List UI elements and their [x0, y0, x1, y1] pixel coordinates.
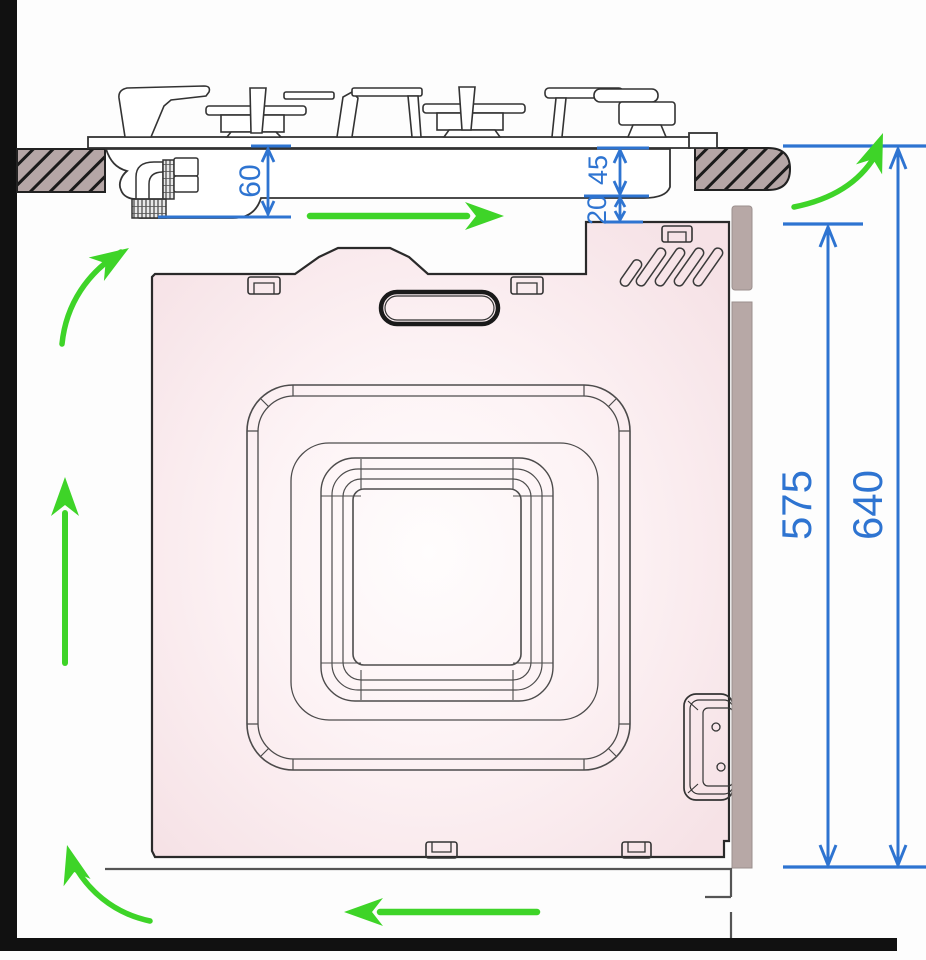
dimension-label-20: 20 [582, 195, 612, 225]
grate-bar-middle [352, 88, 422, 96]
pan-support-left [119, 86, 210, 137]
cabinet-side-panel [732, 206, 752, 868]
gas-nut-lower [174, 176, 198, 192]
airflow-arrow-bottom-left-curved [53, 841, 150, 921]
diagram-canvas: 60 45 20 575 640 [0, 0, 926, 960]
burner-arm-right [594, 89, 658, 102]
gas-nipple [132, 199, 166, 218]
dimension-575 [820, 227, 836, 865]
grate-leg-5 [552, 98, 566, 137]
cabinet-base-outline [105, 869, 731, 938]
dimension-label-45: 45 [583, 155, 613, 185]
dimension-label-640: 640 [844, 470, 891, 540]
dimension-640 [890, 149, 906, 865]
airflow-arrow-left [344, 898, 537, 926]
hob-plate-right-lip [689, 133, 717, 148]
gas-nut-upper [174, 158, 198, 176]
built-in-oven [152, 222, 733, 858]
burner-cap-right [619, 102, 675, 125]
side-panel-lower [732, 302, 752, 868]
cabinet-base [105, 869, 731, 938]
grate-rail [284, 92, 334, 99]
airflow-arrow-up-left-curved [62, 236, 137, 344]
installation-diagram: 60 45 20 575 640 [0, 0, 926, 960]
grate-leg-3 [408, 96, 421, 137]
arrowhead [465, 202, 504, 230]
gas-thread-collar [163, 160, 174, 199]
dimension-label-575: 575 [773, 470, 820, 540]
airflow-arrow-right [310, 202, 504, 230]
floor [17, 938, 897, 951]
burner-base-right [628, 125, 666, 137]
side-panel-upper [732, 206, 752, 290]
gas-hob [88, 86, 717, 218]
worktop-right [695, 148, 790, 190]
wall-left [0, 0, 17, 951]
grate-leg-2 [337, 92, 358, 137]
airflow-arrow-up-right-curved [794, 128, 896, 207]
hob-grates-burners [119, 86, 675, 137]
worktop-left [17, 149, 105, 192]
burner-base-middle [444, 130, 500, 137]
oven-body [152, 222, 729, 857]
dimension-label-60: 60 [234, 164, 267, 197]
hob-plate [88, 137, 690, 148]
airflow-arrow-up [51, 477, 79, 663]
